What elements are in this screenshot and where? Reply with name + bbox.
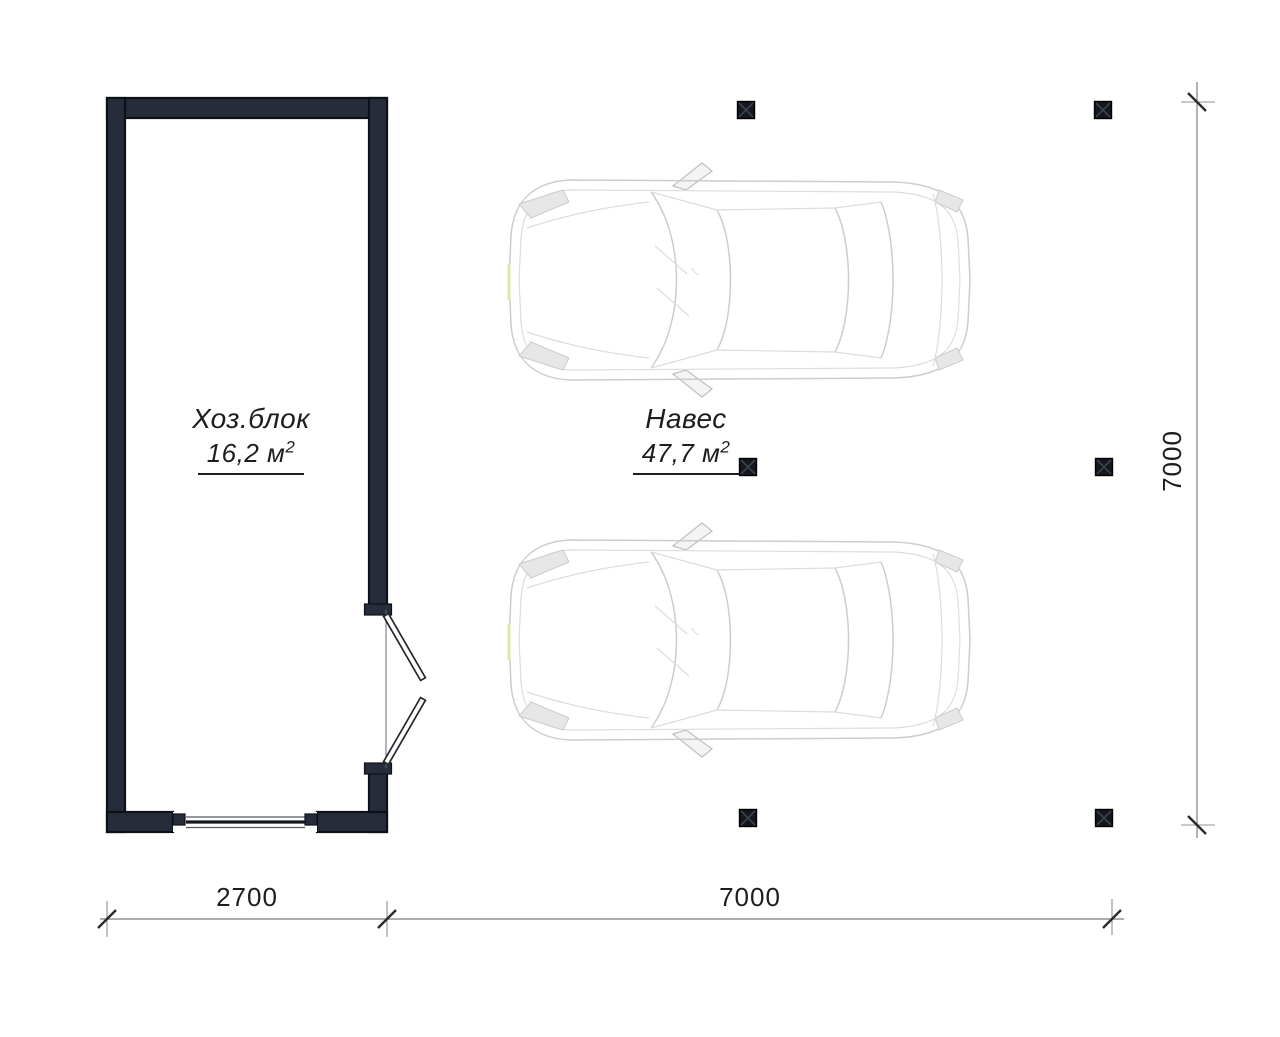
carport-post (1096, 459, 1113, 476)
dim-label-7000-bottom: 7000 (387, 882, 1113, 913)
door-leaf-bottom (384, 698, 426, 765)
door-leaf-top (384, 614, 426, 681)
carport-area: 47,7 м2 (633, 438, 740, 475)
wall-bottom-left (107, 812, 173, 832)
floor-plan-page: Хоз.блок 16,2 м2 Навес 47,7 м2 2700 7000… (0, 0, 1280, 1037)
carport-post (740, 810, 757, 827)
wall-top (107, 98, 387, 118)
dim-label-7000-right: 7000 (1157, 401, 1187, 521)
window-stub-right (305, 814, 317, 825)
double-door (384, 610, 426, 768)
wall-right-upper (369, 98, 387, 609)
carport-label: Навес (566, 403, 806, 435)
carport-post (1096, 810, 1113, 827)
car-top-view (509, 523, 970, 757)
carport-label-group: Навес 47,7 м2 (566, 403, 806, 475)
utility-block-area: 16,2 м2 (198, 438, 305, 475)
carport-post (738, 102, 755, 119)
carport-area-sup: 2 (720, 437, 730, 456)
utility-block-area-value: 16,2 м (207, 438, 286, 468)
window (173, 812, 317, 832)
carport-area-value: 47,7 м (642, 438, 721, 468)
dimension-lines (98, 82, 1215, 937)
wall-bottom-right (317, 812, 387, 832)
utility-block-label: Хоз.блок (131, 403, 371, 435)
dim-label-2700: 2700 (107, 882, 387, 913)
utility-block-area-sup: 2 (285, 437, 295, 456)
window-stub-left (173, 814, 185, 825)
car-top-view (509, 163, 970, 397)
wall-left (107, 98, 125, 832)
carport-post (1095, 102, 1112, 119)
utility-block-label-group: Хоз.блок 16,2 м2 (131, 403, 371, 475)
